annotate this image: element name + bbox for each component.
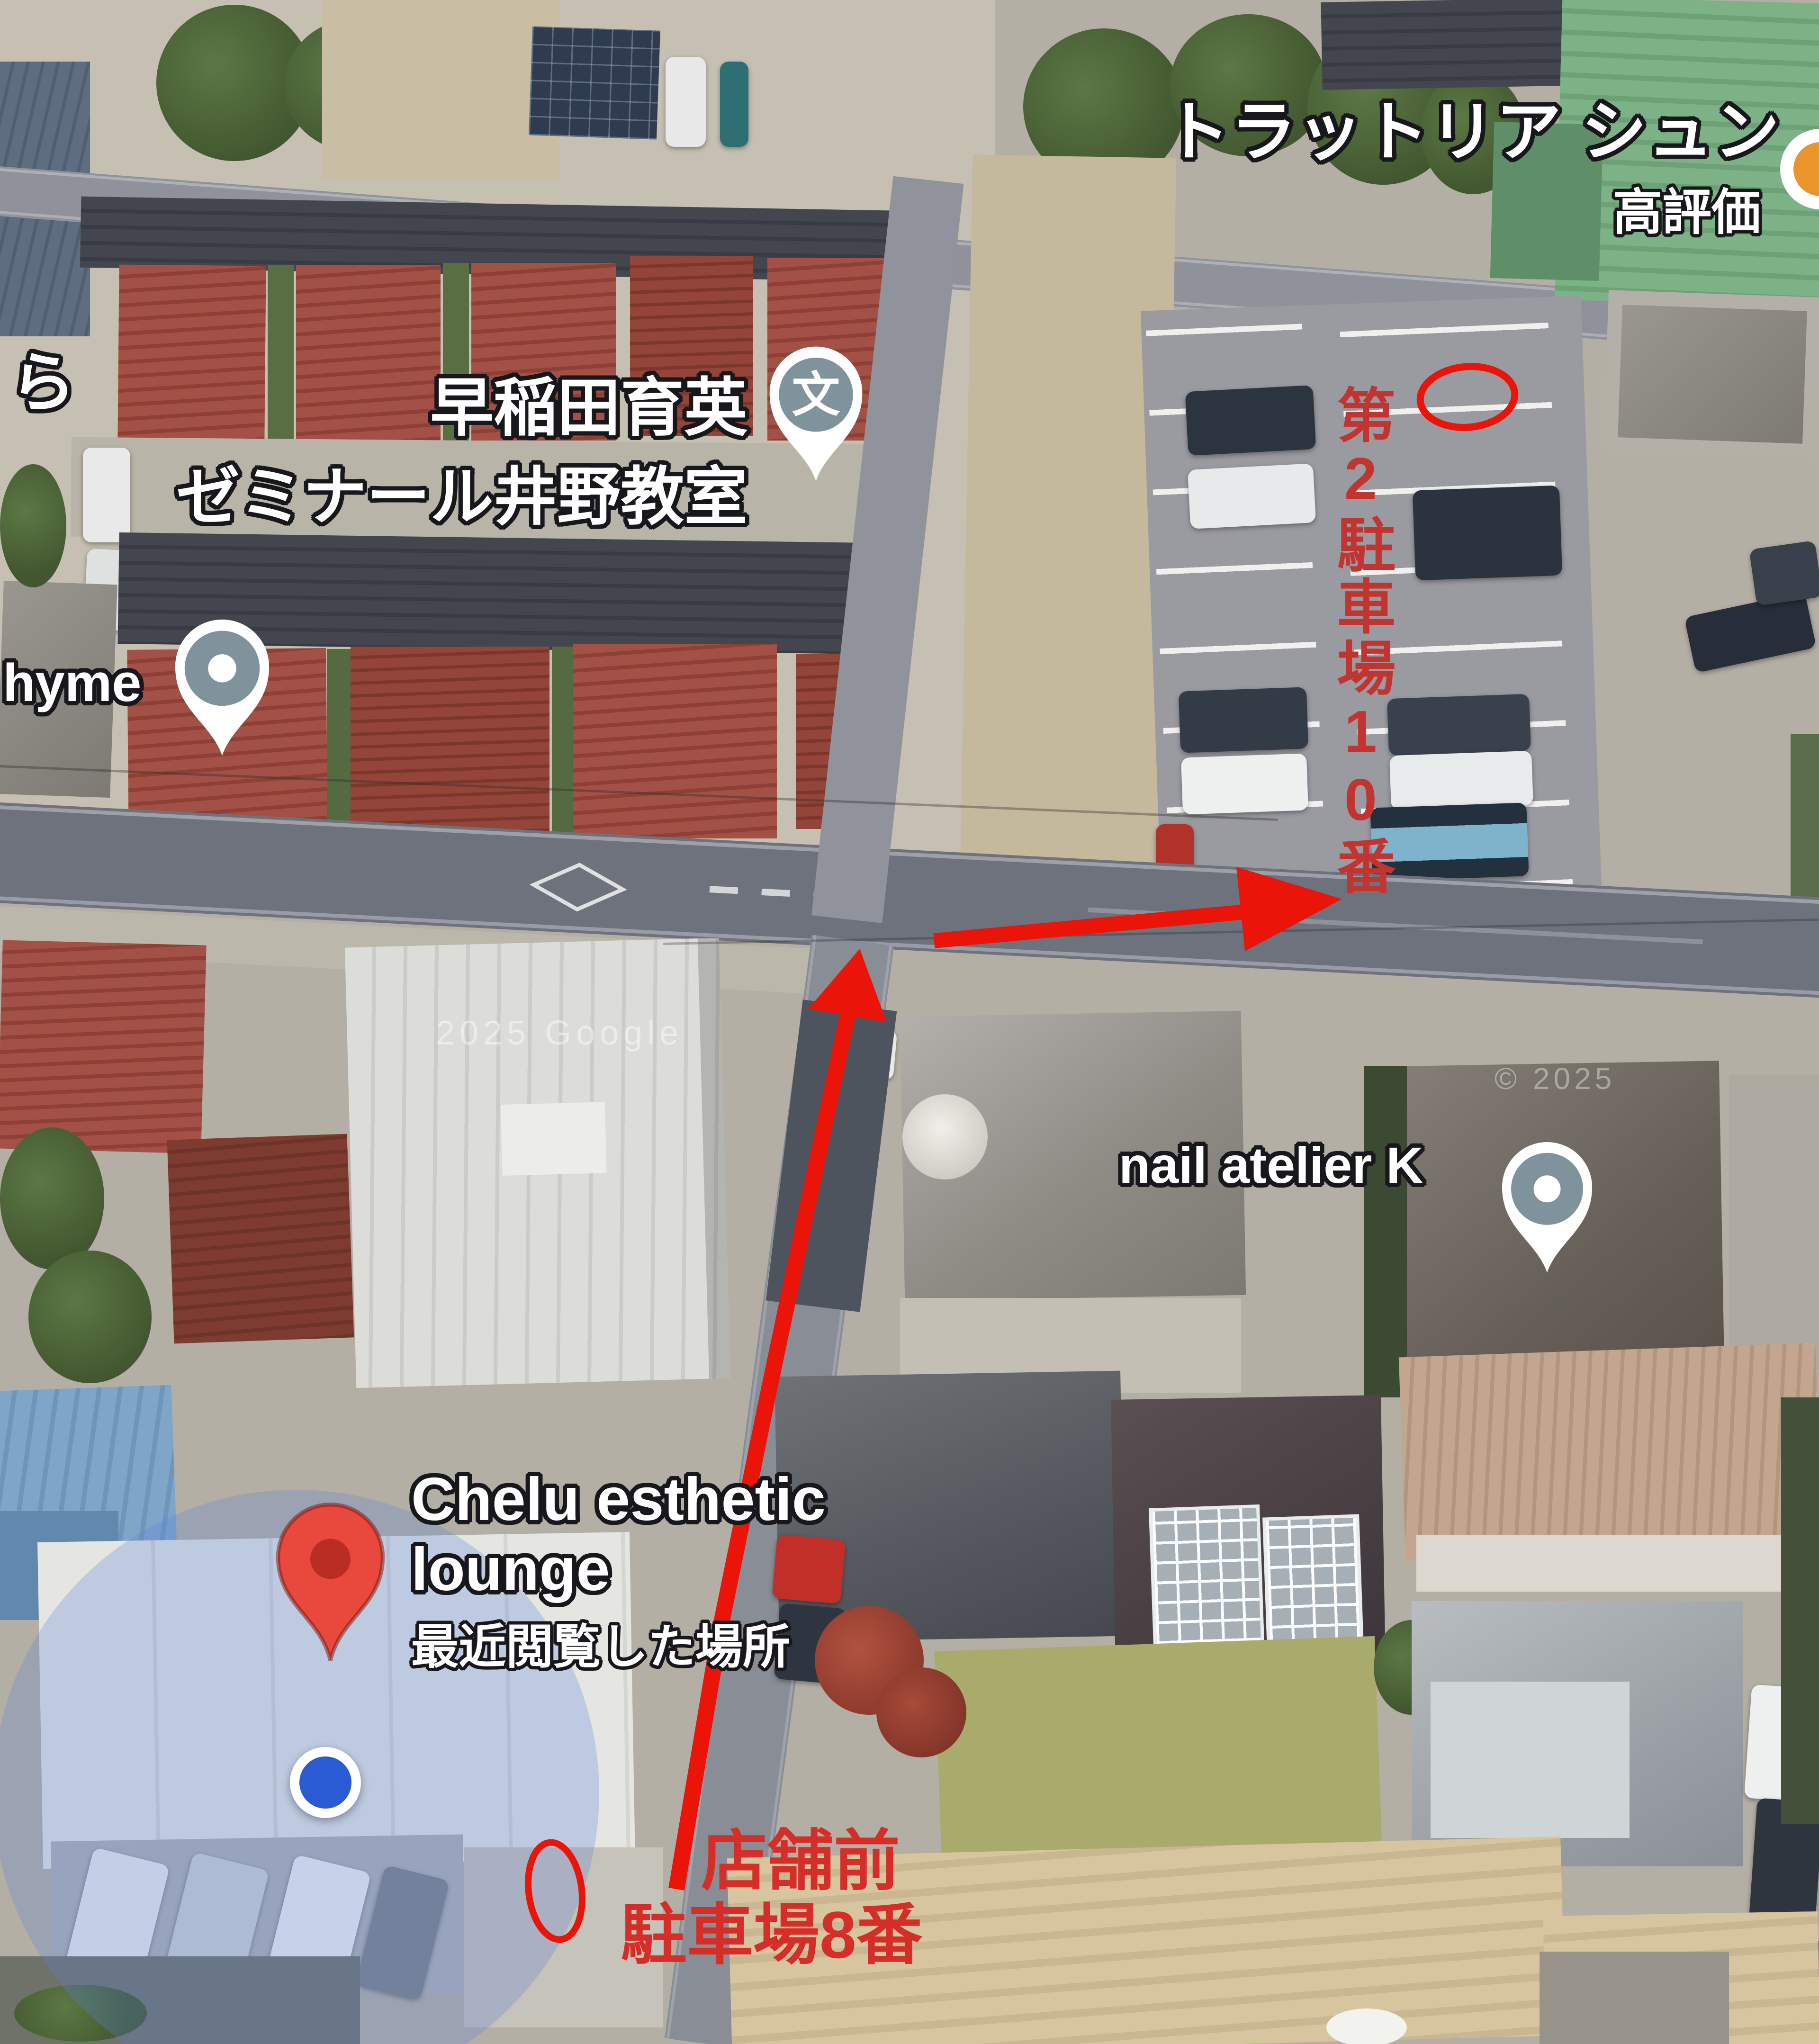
restaurant-badge: 高評価 — [1613, 185, 1761, 242]
greenhouse-grid-1 — [1149, 1504, 1264, 1648]
warehouse-hut — [501, 1102, 607, 1176]
current-location-dot — [299, 1756, 351, 1809]
chelu-red-pin[interactable] — [270, 1495, 391, 1666]
nail-pin-dot — [1534, 1175, 1561, 1202]
white-tank — [1326, 2008, 1407, 2044]
store-front-label-line2: 駐車場8番 — [621, 1899, 923, 1972]
parking-lot2-label: 第2駐車場10番 — [1328, 385, 1393, 897]
tree-midleft-2 — [28, 1251, 152, 1383]
google-watermark: 2025 Google — [436, 1014, 683, 1053]
car-dark-right-2 — [1749, 540, 1819, 606]
tan-roofs-bottom-right — [1399, 1343, 1819, 1561]
van-blue-lot — [1370, 802, 1529, 881]
school-icon: 文 — [792, 367, 840, 423]
school-label-line1: 早稲田育英 — [152, 364, 747, 453]
car-white-lot-1 — [1188, 463, 1316, 529]
flat-roof-section — [1431, 1682, 1630, 1838]
car-white-lot-3 — [1389, 751, 1533, 810]
car-red-road — [772, 1534, 846, 1604]
car-white-top — [666, 57, 706, 147]
chelu-label-line2[interactable]: lounge — [411, 1535, 610, 1604]
chelu-label-line1[interactable]: Chelu esthetic — [411, 1465, 826, 1534]
tree-midleft-1 — [0, 1127, 104, 1270]
hedge-right-bottom-edge — [1781, 1397, 1819, 1824]
solar-roof-top — [529, 26, 660, 139]
school-label[interactable]: 早稲田育英 ゼミナール井野教室 — [152, 364, 747, 541]
hedge-gap-4 — [552, 647, 573, 838]
hedge-gap-3 — [327, 649, 351, 838]
house-roof-midleft-2 — [167, 1134, 354, 1344]
right-houses-mid — [1729, 1075, 1819, 1369]
apartment-roof-red-2b — [351, 647, 549, 836]
gravel-lot-mid — [960, 154, 1176, 878]
apartment-roof-red-2c — [573, 644, 777, 838]
car-teal-top — [720, 62, 748, 147]
red-pin-balloon — [278, 1504, 383, 1660]
car-dark-lot-3 — [1387, 694, 1531, 756]
nail-atelier-pin[interactable] — [1493, 1133, 1601, 1277]
greenhouse-grid-2 — [1262, 1514, 1364, 1652]
copyright-watermark: © 2025 — [1495, 1061, 1615, 1096]
thyme-pin[interactable] — [166, 610, 279, 760]
house-roof-midleft-1 — [0, 940, 207, 1153]
gravel-top — [322, 0, 559, 180]
gazebo-round-roof — [902, 1094, 988, 1180]
left-partial-label: ら — [10, 346, 76, 421]
nail-atelier-label[interactable]: nail atelier K — [1119, 1136, 1423, 1195]
suv-dark-lot — [1413, 486, 1562, 581]
car-white-driveway — [83, 448, 130, 542]
house-bottom-right-corner — [1540, 1952, 1729, 2044]
warehouse-roof — [345, 938, 730, 1388]
school-label-line2: ゼミナール井野教室 — [152, 453, 747, 542]
road-center-line — [1088, 908, 1703, 945]
tree-left-1 — [0, 464, 66, 587]
warehouse-shadow — [698, 938, 730, 1379]
gray-house-bottom-right — [1412, 1601, 1743, 1866]
car-dark-lot-2 — [1179, 687, 1308, 753]
chelu-recent-note: 最近閲覧した場所 — [411, 1620, 790, 1675]
satellite-map: 2025 Google © 2025 第2駐車場10番 店舗前 駐車場8番 文 — [0, 0, 1819, 2044]
thyme-pin-dot — [208, 654, 236, 682]
navy-roof-top-right — [1321, 0, 1587, 90]
thyme-label[interactable]: hyme — [3, 653, 142, 714]
red-pin-inner-dot — [310, 1539, 351, 1579]
roadside-dark-strip — [766, 999, 897, 1312]
right-house-roof — [1618, 305, 1807, 443]
car-dark-right-1 — [1684, 592, 1816, 673]
road-diamond-marking — [530, 863, 627, 911]
greenery-right-edge — [1791, 734, 1819, 924]
red-tree-2 — [876, 1667, 966, 1757]
alley-hedge — [1364, 1066, 1407, 1397]
store-front-label-line1: 店舗前 — [701, 1825, 900, 1898]
car-white-lot-2 — [1181, 753, 1308, 814]
restaurant-label[interactable]: トラットリア シュン — [1164, 95, 1780, 170]
school-pin[interactable]: 文 — [760, 337, 872, 486]
car-dark-lot-1 — [1185, 385, 1316, 456]
lawn — [934, 1636, 1382, 1864]
white-walls-bottom-right — [1416, 1535, 1814, 1592]
